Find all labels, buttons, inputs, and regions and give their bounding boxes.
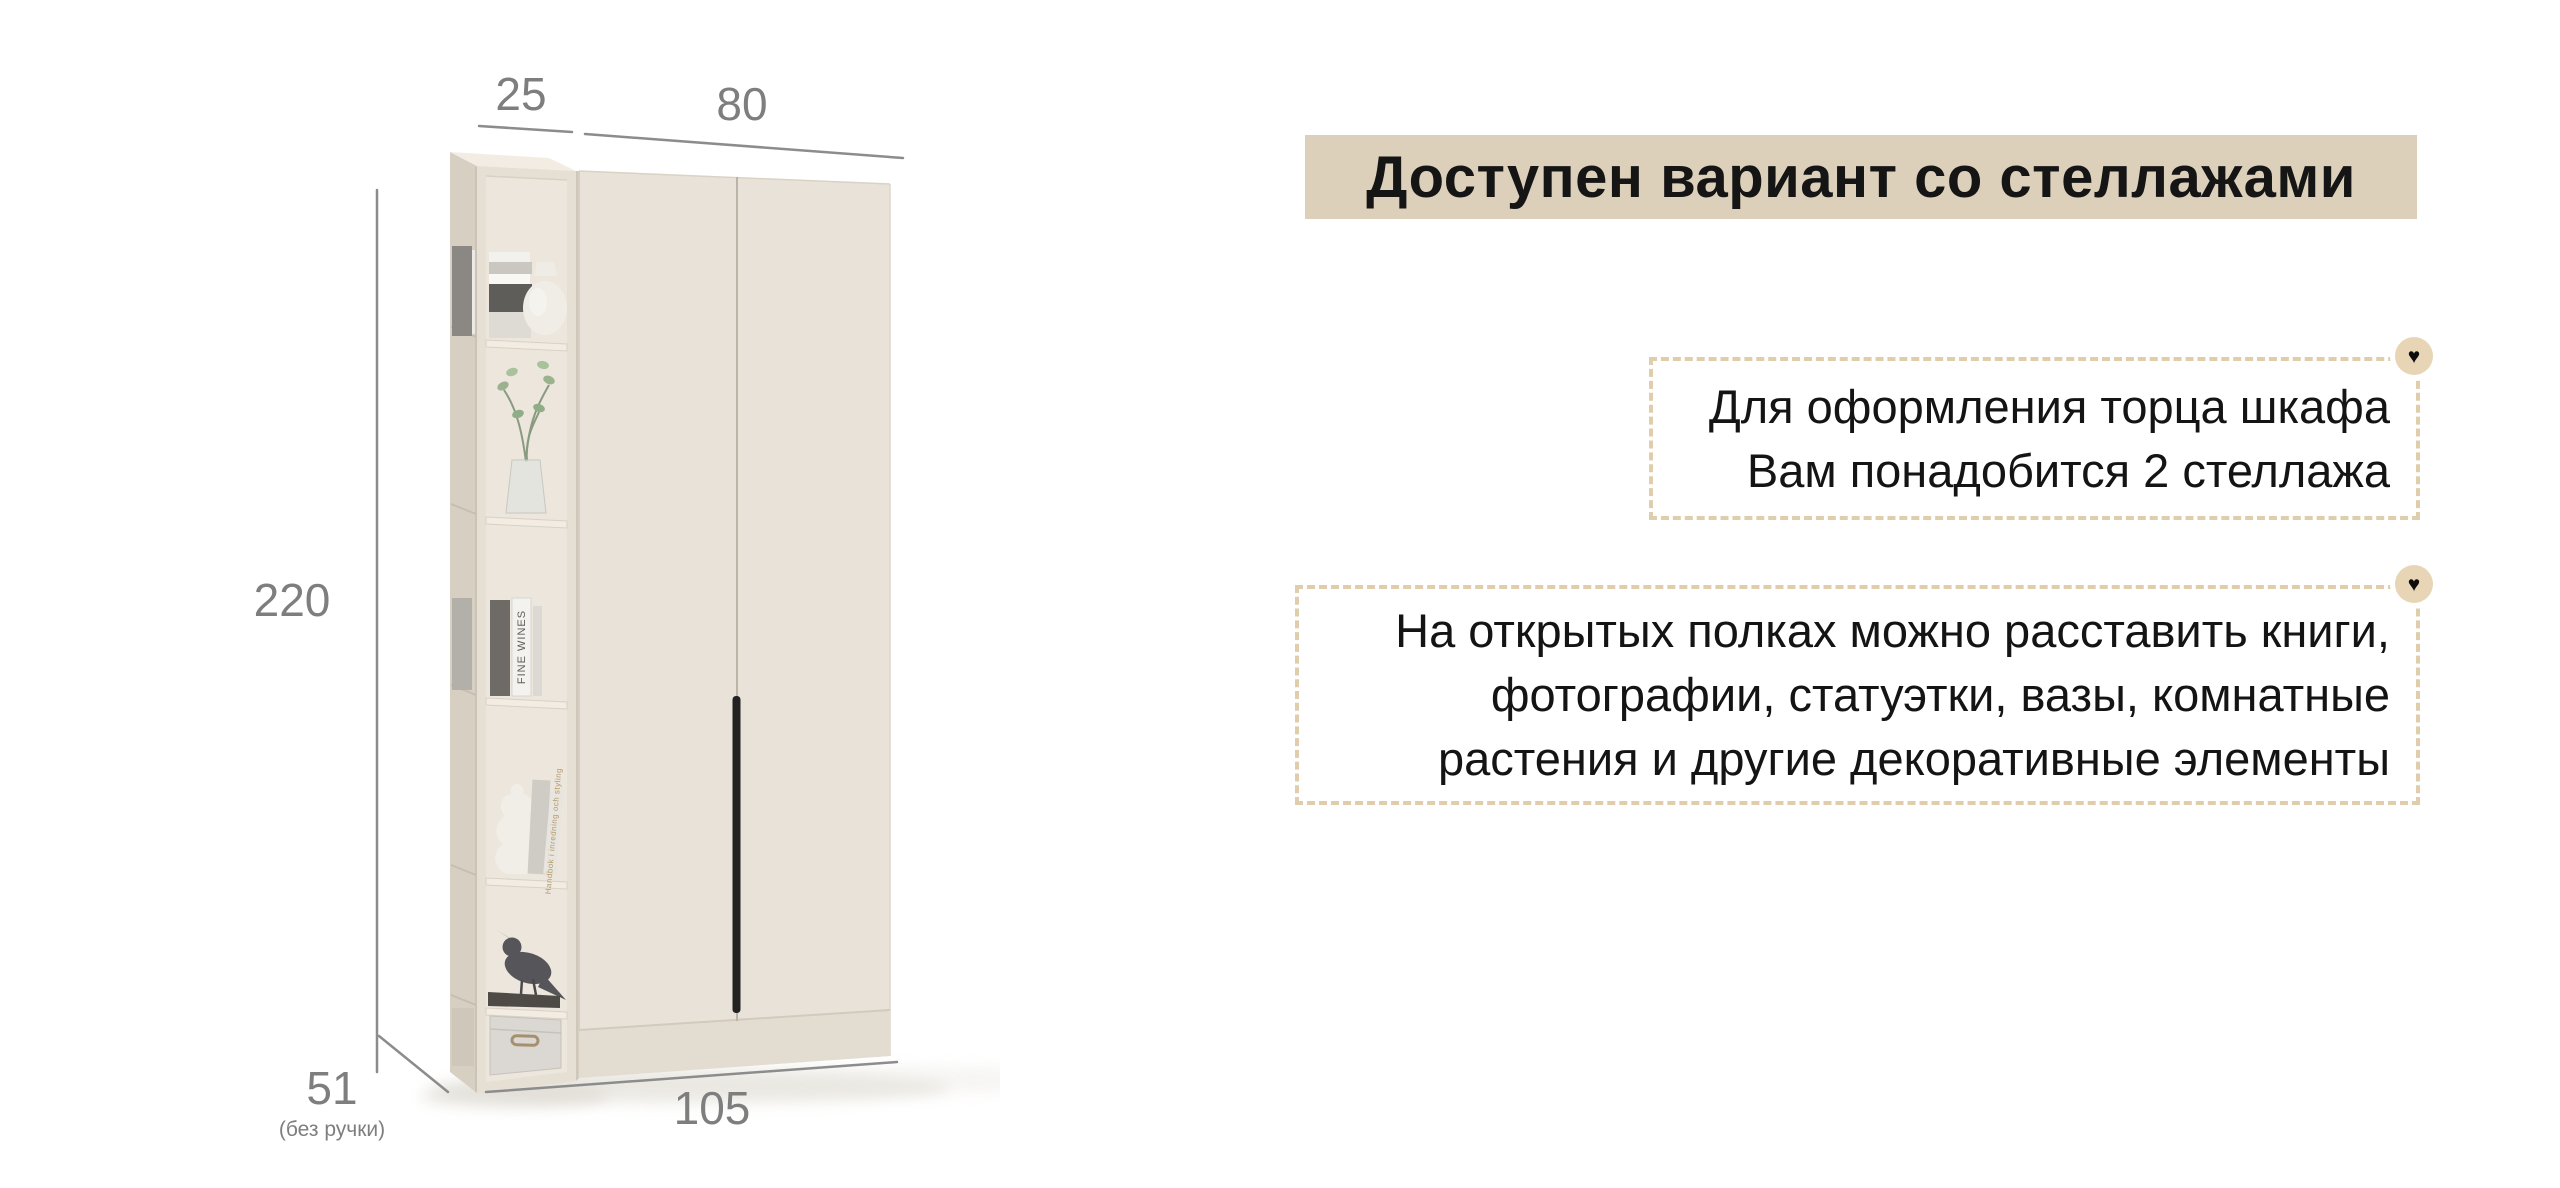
callout-line: Для оформления торца шкафа — [1709, 375, 2390, 439]
door-handle — [733, 696, 741, 1013]
callout-line: На открытых полках можно расставить книг… — [1395, 599, 2390, 663]
heart-glyph: ♥ — [2408, 574, 2420, 595]
heart-icon: ♥ — [2395, 565, 2433, 603]
infographic: FINE WINES Handbok i inredning och styli… — [0, 0, 2560, 1188]
storage-box — [490, 1016, 561, 1075]
callout-line: Вам понадобится 2 стеллажа — [1747, 439, 2390, 503]
dimension-line-25 — [479, 126, 572, 132]
callout-box-1: ♥ Для оформления торца шкафа Вам понадоб… — [1649, 357, 2420, 520]
side-storage-box — [452, 1008, 474, 1066]
dim-note-handle: (без ручки) — [279, 1118, 385, 1141]
dimension-line-51 — [379, 1036, 448, 1092]
wardrobe-diagram-area: FINE WINES Handbok i inredning och styli… — [0, 0, 1000, 1188]
dim-label-51: 51 — [306, 1062, 357, 1114]
heart-glyph: ♥ — [2408, 346, 2420, 367]
books-stack — [489, 252, 532, 338]
callout-line: фотографии, статуэтки, вазы, комнатные — [1491, 663, 2390, 727]
dim-label-80: 80 — [716, 78, 767, 130]
dimension-line-80 — [585, 134, 903, 158]
wardrobe-diagram: FINE WINES Handbok i inredning och styli… — [0, 0, 1000, 1188]
banner-title-text: Доступен вариант со стеллажами — [1366, 144, 2356, 211]
side-books — [452, 598, 472, 690]
side-books — [452, 246, 472, 336]
heart-icon: ♥ — [2395, 337, 2433, 375]
standing-books: FINE WINES — [490, 598, 542, 696]
dim-label-105: 105 — [674, 1082, 751, 1134]
dim-label-25: 25 — [495, 68, 546, 120]
banner-title: Доступен вариант со стеллажами — [1305, 135, 2417, 219]
wardrobe-doors — [579, 171, 890, 1078]
callout-line: растения и другие декоративные элементы — [1438, 727, 2390, 791]
dim-label-220: 220 — [254, 574, 331, 626]
callout-box-2: ♥ На открытых полках можно расставить кн… — [1295, 585, 2420, 805]
book-spine-label: FINE WINES — [516, 610, 528, 684]
